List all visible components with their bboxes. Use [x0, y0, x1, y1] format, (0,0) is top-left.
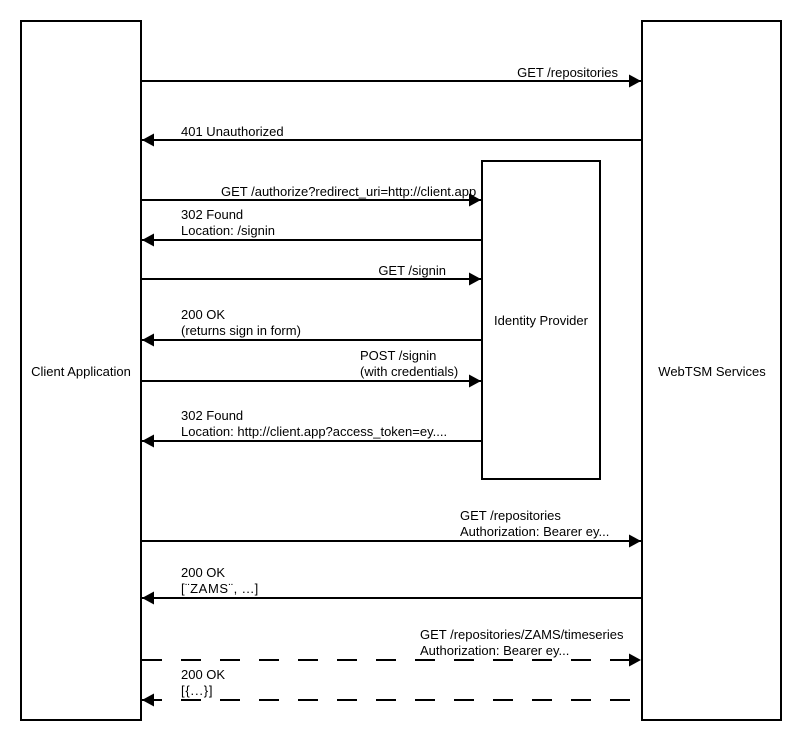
svg-text:Identity Provider: Identity Provider [494, 313, 589, 328]
svg-text:POST /signin: POST /signin [360, 348, 436, 363]
svg-text:Location: /signin: Location: /signin [181, 223, 275, 238]
svg-text:GET /repositories: GET /repositories [460, 508, 561, 523]
svg-text:GET /repositories/ZAMS/timeser: GET /repositories/ZAMS/timeseries [420, 627, 624, 642]
svg-text:Location: http://client.app?ac: Location: http://client.app?access_token… [181, 424, 447, 439]
svg-text:WebTSM Services: WebTSM Services [658, 364, 766, 379]
svg-text:Authorization: Bearer ey...: Authorization: Bearer ey... [420, 643, 569, 658]
svg-text:(returns sign in form): (returns sign in form) [181, 323, 301, 338]
svg-text:200 OK: 200 OK [181, 307, 225, 322]
svg-text:302 Found: 302 Found [181, 207, 243, 222]
svg-text:GET /authorize?redirect_uri=ht: GET /authorize?redirect_uri=http://clien… [221, 184, 476, 199]
svg-text:[{...}]: [{...}] [181, 683, 213, 698]
svg-text:GET /signin: GET /signin [378, 263, 446, 278]
svg-text:401 Unauthorized: 401 Unauthorized [181, 124, 284, 139]
svg-text:(with credentials): (with credentials) [360, 364, 458, 379]
svg-text:[¨ZAMS¨, ...]: [¨ZAMS¨, ...] [181, 581, 259, 596]
svg-text:Client Application: Client Application [31, 364, 131, 379]
svg-text:GET /repositories: GET /repositories [517, 65, 618, 80]
svg-text:200 OK: 200 OK [181, 565, 225, 580]
svg-text:302 Found: 302 Found [181, 408, 243, 423]
svg-text:200 OK: 200 OK [181, 667, 225, 682]
svg-text:Authorization: Bearer ey...: Authorization: Bearer ey... [460, 524, 609, 539]
